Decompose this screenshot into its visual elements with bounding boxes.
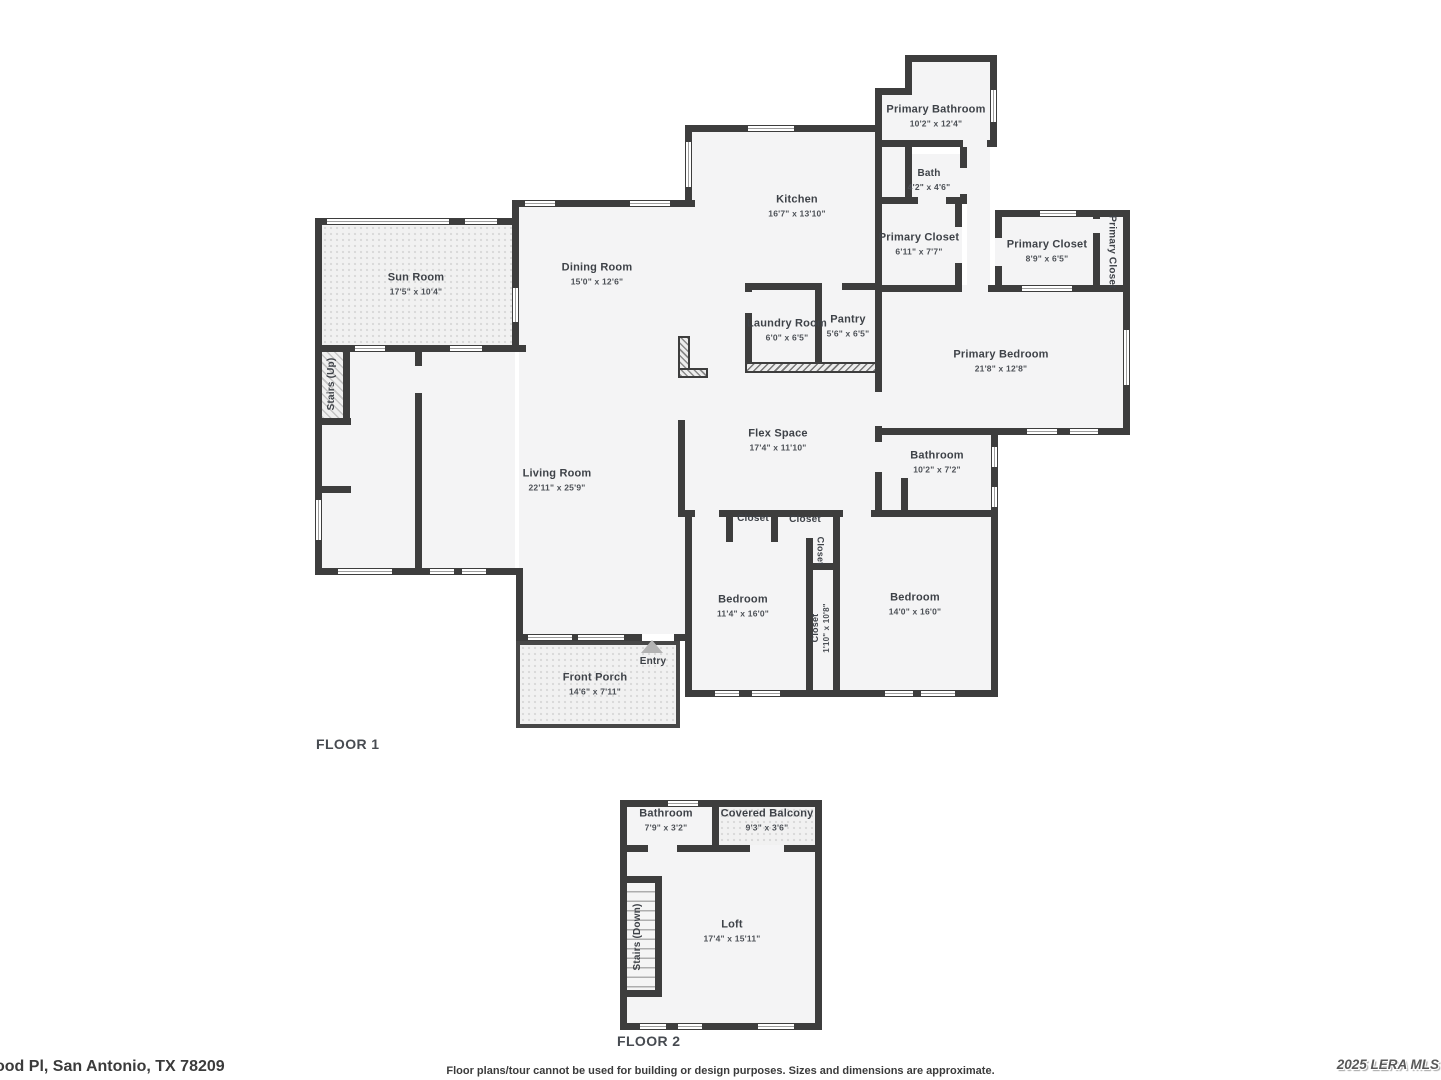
disclaimer-text: Floor plans/tour cannot be used for buil…: [0, 1065, 1441, 1077]
room-dims: 1'10" x 10'8": [822, 603, 832, 653]
floor2-label: FLOOR 2: [617, 1033, 680, 1049]
room-label-closet-b: Closet: [789, 514, 821, 527]
room-dims: 5'6" x 6'5": [827, 328, 870, 339]
room-name: Closet: [814, 537, 825, 566]
room-label-kitchen: Kitchen 16'7" x 13'10": [768, 193, 825, 218]
room-name: Primary Closet: [1105, 215, 1118, 288]
room-name: Closet: [737, 513, 769, 526]
room-name: Stairs (Down): [632, 903, 645, 970]
room-name: Primary Closet: [879, 231, 959, 245]
room-label-entry: Entry: [640, 656, 667, 669]
room-label-primary-closet-c: Primary Closet: [1105, 215, 1118, 288]
room-label-bedroom-a: Bedroom 11'4" x 16'0": [717, 593, 769, 618]
room-label-bathroom-f2: Bathroom 7'9" x 3'2": [639, 807, 693, 832]
room-dims: 14'0" x 16'0": [889, 606, 942, 617]
room-name: Bedroom: [717, 593, 769, 607]
room-label-laundry-room: Laundry Room 6'0" x 6'5": [747, 317, 827, 342]
room-name: Kitchen: [768, 193, 825, 207]
room-label-front-porch: Front Porch 14'6" x 7'11": [563, 671, 628, 696]
room-label-living-room: Living Room 22'11" x 25'9": [523, 467, 592, 492]
room-dims: 8'9" x 6'5": [1007, 253, 1087, 264]
room-dims: 17'5" x 10'4": [388, 286, 445, 297]
room-label-primary-bedroom: Primary Bedroom 21'8" x 12'8": [953, 348, 1048, 373]
room-label-dining-room: Dining Room 15'0" x 12'6": [562, 261, 633, 286]
room-label-stairs-down: Stairs (Down): [632, 903, 645, 970]
room-name: Sun Room: [388, 271, 445, 285]
room-dims: 6'0" x 6'5": [747, 332, 827, 343]
room-dims: 4'2" x 4'6": [908, 181, 951, 192]
room-name: Loft: [704, 918, 761, 932]
room-dims: 21'8" x 12'8": [953, 363, 1048, 374]
room-name: Covered Balcony: [721, 807, 814, 821]
room-label-sun-room: Sun Room 17'5" x 10'4": [388, 271, 445, 296]
room-name: Bathroom: [910, 449, 964, 463]
room-label-covered-balcony: Covered Balcony 9'3" x 3'6": [721, 807, 814, 832]
room-label-closet-a: Closet: [737, 513, 769, 526]
room-name: Stairs (Up): [326, 358, 339, 411]
floorplan-canvas: Sun Room 17'5" x 10'4" Dining Room 15'0"…: [0, 0, 1441, 1080]
room-label-primary-closet-a: Primary Closet 6'11" x 7'7": [879, 231, 959, 256]
room-label-bedroom-b: Bedroom 14'0" x 16'0": [889, 591, 942, 616]
room-name: Bathroom: [639, 807, 693, 821]
floorplan-labels-layer: Sun Room 17'5" x 10'4" Dining Room 15'0"…: [0, 0, 1441, 1080]
room-name: Dining Room: [562, 261, 633, 275]
room-dims: 6'11" x 7'7": [879, 246, 959, 257]
room-label-primary-closet-b: Primary Closet 8'9" x 6'5": [1007, 238, 1087, 263]
room-name: Front Porch: [563, 671, 628, 685]
room-dims: 16'7" x 13'10": [768, 208, 825, 219]
room-dims: 15'0" x 12'6": [562, 276, 633, 287]
room-name: Closet: [810, 603, 821, 653]
room-dims: 7'9" x 3'2": [639, 822, 693, 833]
room-label-pantry: Pantry 5'6" x 6'5": [827, 313, 870, 338]
watermark-text: 2025 LERA MLS: [1337, 1057, 1439, 1072]
room-dims: 17'4" x 15'11": [704, 933, 761, 944]
room-dims: 10'2" x 12'4": [886, 118, 985, 129]
room-label-stairs-up: Stairs (Up): [326, 358, 339, 411]
room-label-bathroom-f1: Bathroom 10'2" x 7'2": [910, 449, 964, 474]
room-name: Primary Bathroom: [886, 103, 985, 117]
room-name: Primary Bedroom: [953, 348, 1048, 362]
room-name: Bedroom: [889, 591, 942, 605]
room-name: Living Room: [523, 467, 592, 481]
room-dims: 14'6" x 7'11": [563, 686, 628, 697]
room-label-flex-space: Flex Space 17'4" x 11'10": [748, 427, 807, 452]
room-name: Closet: [789, 514, 821, 527]
room-label-primary-bathroom: Primary Bathroom 10'2" x 12'4": [886, 103, 985, 128]
room-name: Bath: [908, 168, 951, 181]
room-dims: 10'2" x 7'2": [910, 464, 964, 475]
room-dims: 17'4" x 11'10": [748, 442, 807, 453]
room-dims: 11'4" x 16'0": [717, 608, 769, 619]
room-dims: 9'3" x 3'6": [721, 822, 814, 833]
room-name: Laundry Room: [747, 317, 827, 331]
room-label-closet-c: Closet: [814, 537, 825, 566]
room-label-bath: Bath 4'2" x 4'6": [908, 168, 951, 192]
room-name: Pantry: [827, 313, 870, 327]
floor1-label: FLOOR 1: [316, 736, 379, 752]
room-name: Primary Closet: [1007, 238, 1087, 252]
room-label-loft: Loft 17'4" x 15'11": [704, 918, 761, 943]
room-dims: 22'11" x 25'9": [523, 482, 592, 493]
room-name: Flex Space: [748, 427, 807, 441]
room-name: Entry: [640, 656, 667, 669]
room-label-closet-d: Closet 1'10" x 10'8": [810, 603, 832, 653]
entry-arrow-icon: [641, 640, 663, 653]
